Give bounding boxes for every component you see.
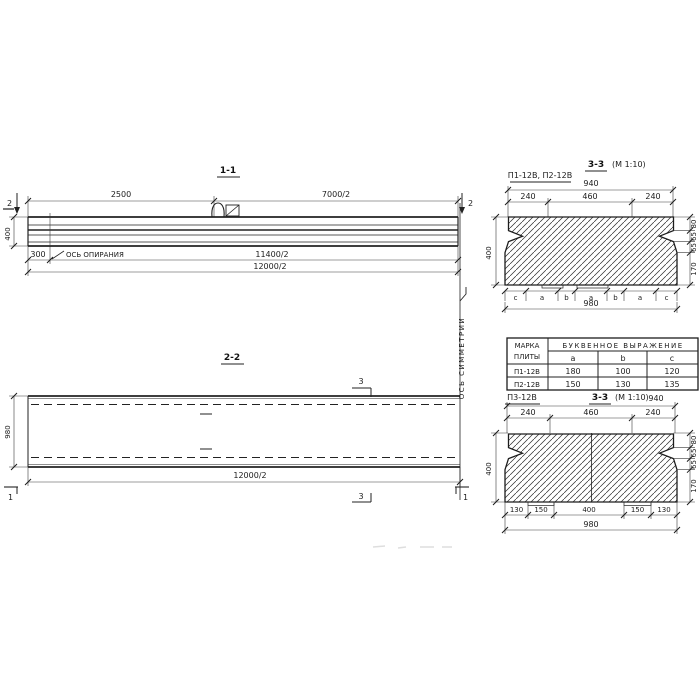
dim-240-left: 240 (520, 192, 535, 201)
dim-240-right: 240 (645, 408, 660, 417)
letter-b2: b (613, 294, 618, 302)
slab-plan (28, 396, 460, 467)
row2-c: 135 (664, 380, 679, 389)
cross-section-body (505, 217, 677, 285)
row2-a: 150 (565, 380, 580, 389)
letter-c1: c (514, 294, 518, 302)
letter-a1: a (540, 294, 544, 302)
cut-mark-3-top: 3 (352, 377, 371, 397)
dim-150-left: 150 (534, 506, 547, 514)
beam-elevation (28, 213, 458, 246)
table-row: П1-12В 180 100 120 (514, 367, 680, 376)
faint-print-artifact (373, 546, 452, 548)
dim-80: 80 (690, 220, 698, 229)
axis-flag (460, 287, 466, 301)
table-row: П2-12В 150 130 135 (514, 380, 680, 389)
parameter-table: МАРКА ПЛИТЫ БУКВЕННОЕ ВЫРАЖЕНИЕ a b c П1… (507, 338, 698, 390)
row1-a: 180 (565, 367, 580, 376)
dim-400: 400 (485, 462, 493, 475)
dim-65-b: 65 (690, 243, 698, 252)
section-1-1-title: 1-1 (220, 166, 236, 176)
row2-mark: П2-12В (514, 381, 540, 389)
table-header-expression: БУКВЕННОЕ ВЫРАЖЕНИЕ (562, 342, 683, 350)
extension-lines (9, 196, 458, 276)
table-col-a: a (571, 354, 576, 363)
section-1-1-view: 1-1 2500 7000/2 2 2 (3, 166, 473, 276)
drawing-canvas: 1-1 2500 7000/2 2 2 (0, 0, 700, 700)
table-header-mark-1: МАРКА (515, 342, 540, 350)
cut-mark-1-left: 1 (4, 487, 18, 502)
section-2-2-title: 2-2 (224, 353, 240, 363)
plate-mark-label: П3-12В (507, 393, 537, 402)
dim-12000-2: 12000/2 (253, 262, 286, 271)
bearing-axis-label: ОСЬ ОПИРАНИЯ (66, 251, 124, 259)
dim-980: 980 (4, 425, 12, 438)
scale-note: (М 1:10) (615, 393, 649, 402)
dim-400: 400 (4, 227, 12, 240)
dim-65-b: 65 (690, 460, 698, 469)
dim-150-right: 150 (631, 506, 644, 514)
dim-12000-2: 12000/2 (233, 471, 266, 480)
dim-940: 940 (648, 394, 663, 403)
table-col-c: c (670, 354, 674, 363)
cut-mark-1-right: 1 (455, 487, 469, 502)
bearing-leader (52, 251, 64, 259)
section-3-3-title: 3-3 (588, 160, 604, 170)
dim-460: 460 (583, 408, 598, 417)
cut-mark-2-right: 2 (459, 193, 473, 214)
table-col-b: b (620, 354, 625, 363)
dim-300: 300 (30, 250, 45, 259)
extension-lines (507, 402, 675, 433)
dim-7000-2: 7000/2 (322, 190, 350, 199)
cut-label: 1 (463, 493, 468, 502)
loop-tag-diagonal (226, 205, 239, 216)
dim-980: 980 (583, 299, 598, 308)
cut-mark-3-bottom: 3 (352, 492, 371, 502)
dim-65-a: 65 (690, 449, 698, 458)
dim-460: 460 (582, 192, 597, 201)
dim-170: 170 (690, 262, 698, 275)
dim-240-right: 240 (645, 192, 660, 201)
plate-marks-label: П1-12В, П2-12В (508, 171, 572, 180)
section-2-2-view: 2-2 3 980 12000/2 (4, 203, 469, 502)
section-3-3-title: 3-3 (592, 393, 608, 403)
cut-arrow (14, 207, 20, 214)
dim-400-mid: 400 (582, 506, 595, 514)
lifting-loop (212, 203, 239, 217)
letter-b1: b (564, 294, 569, 302)
cut-label: 2 (7, 199, 12, 208)
dim-65-a: 65 (690, 232, 698, 241)
cut-label: 2 (468, 199, 473, 208)
dim-2500: 2500 (111, 190, 131, 199)
blueprint-sheet: 1-1 2500 7000/2 2 2 (0, 0, 700, 700)
section-3-3-top-view: П1-12В, П2-12В 3-3 (М 1:10) 940 240 460 … (485, 160, 698, 313)
dim-80: 80 (690, 436, 698, 445)
cut-label: 1 (8, 493, 13, 502)
symmetry-axis-label: ОСЬ СИММЕТРИИ (458, 317, 466, 400)
symmetry-axis: ОСЬ СИММЕТРИИ (458, 203, 466, 500)
section-3-3-bottom-view: П3-12В 3-3 (М 1:10) 940 240 460 240 400 … (485, 393, 698, 534)
dim-400: 400 (485, 246, 493, 259)
dim-130-right: 130 (657, 506, 670, 514)
cut-label: 3 (358, 492, 363, 501)
dim-980: 980 (583, 520, 598, 529)
letter-a3: a (638, 294, 642, 302)
cross-section-body (505, 434, 677, 502)
row1-b: 100 (615, 367, 630, 376)
centerline-dashes (200, 414, 212, 449)
dim-170: 170 (690, 479, 698, 492)
row1-mark: П1-12В (514, 368, 540, 376)
dim-130-left: 130 (510, 506, 523, 514)
dim-11400-2: 11400/2 (255, 250, 288, 259)
extension-lines (508, 186, 673, 217)
row2-b: 130 (615, 380, 630, 389)
letter-c2: c (665, 294, 669, 302)
scale-note: (М 1:10) (612, 160, 646, 169)
row1-c: 120 (664, 367, 679, 376)
table-header-mark-2: ПЛИТЫ (514, 353, 540, 361)
cut-mark-2-left: 2 (3, 193, 20, 214)
loop-arc (212, 203, 224, 217)
cut-label: 3 (358, 377, 363, 386)
dim-940: 940 (583, 179, 598, 188)
dim-240-left: 240 (520, 408, 535, 417)
